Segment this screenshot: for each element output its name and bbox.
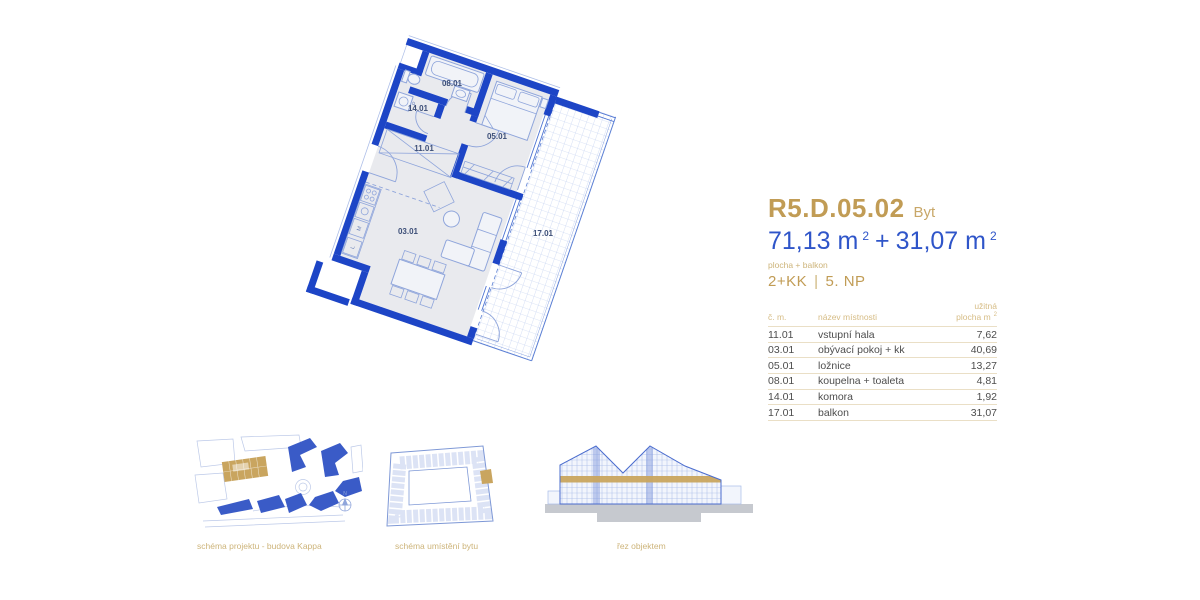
header-name: název místnosti — [818, 312, 943, 322]
table-header: č. m. název místnosti užitná plocha m2 — [768, 301, 997, 327]
unit-areas: 71,13 m2+31,07 m2 — [768, 227, 997, 256]
table-row: 11.01vstupní hala7,62 — [768, 327, 997, 343]
floor: 5. NP — [826, 273, 866, 290]
highlighted-unit — [480, 469, 493, 484]
floor-plan: P M — [295, 0, 640, 392]
area-main-sup: 2 — [862, 229, 869, 243]
room-label-hall: 11.01 — [414, 144, 434, 153]
ground — [545, 504, 753, 513]
table-row: 08.01koupelna + toaleta4,81 — [768, 374, 997, 390]
unit-location-diagram — [383, 441, 497, 535]
area-note: plocha + balkon — [768, 260, 997, 270]
apartment-sheet: P M — [0, 0, 1200, 600]
table-row: 17.01balkon31,07 — [768, 405, 997, 421]
table-row: 05.01ložnice13,27 — [768, 358, 997, 374]
unit-id: R5.D.05.02 — [768, 193, 905, 223]
unit-location-caption: schéma umístění bytu — [395, 541, 478, 551]
unit-title: R5.D.05.02Byt — [768, 193, 997, 224]
room-label-storage: 14.01 — [408, 104, 429, 113]
building-kappa — [222, 456, 268, 482]
area-main: 71,13 m — [768, 227, 858, 255]
header-number: č. m. — [768, 312, 818, 322]
room-label-living: 03.01 — [398, 227, 419, 236]
site-plan-diagram: N — [193, 433, 363, 533]
table-row: 03.01obývací pokoj + kk40,69 — [768, 343, 997, 359]
building-section-diagram — [545, 437, 755, 535]
room-label-bedroom: 05.01 — [487, 132, 508, 141]
unit-disposition: 2+KK|5. NP — [768, 273, 997, 290]
header-area: užitná plocha m2 — [943, 301, 997, 322]
section-caption: řez objektem — [617, 541, 666, 551]
highlighted-floor — [560, 476, 721, 483]
room-table: č. m. název místnosti užitná plocha m2 1… — [768, 301, 997, 421]
separator: | — [814, 273, 818, 290]
table-row: 14.01komora1,92 — [768, 390, 997, 406]
area-balcony: 31,07 m — [896, 227, 986, 255]
unit-type: Byt — [914, 204, 936, 221]
room-label-balcony: 17.01 — [533, 229, 554, 238]
site-plan-caption: schéma projektu - budova Kappa — [197, 541, 322, 551]
layout: 2+KK — [768, 273, 807, 290]
unit-info: R5.D.05.02Byt 71,13 m2+31,07 m2 plocha +… — [768, 193, 997, 290]
area-plus: + — [875, 227, 890, 255]
room-label-bathroom: 08.01 — [442, 79, 463, 88]
compass-label: N — [343, 491, 347, 497]
area-balcony-sup: 2 — [990, 229, 997, 243]
